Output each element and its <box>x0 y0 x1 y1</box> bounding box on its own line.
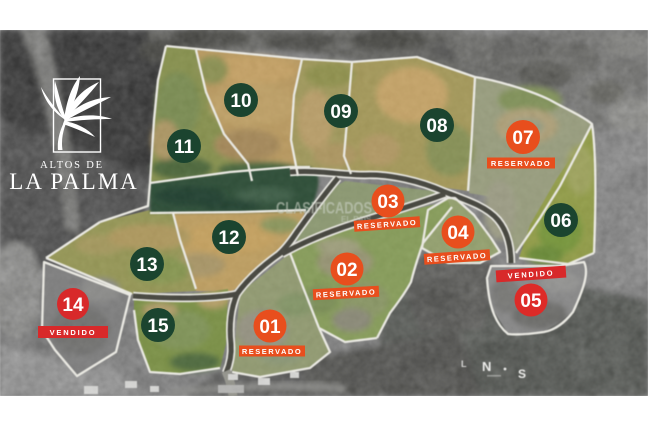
svg-text:03: 03 <box>377 192 398 213</box>
svg-text:RESERVADO: RESERVADO <box>242 347 302 356</box>
svg-text:S: S <box>518 367 526 381</box>
svg-text:07: 07 <box>512 128 533 149</box>
svg-text:01: 01 <box>259 317 281 338</box>
svg-text:09: 09 <box>330 102 351 123</box>
svg-text:14: 14 <box>62 295 84 316</box>
svg-text:LA PALMA: LA PALMA <box>9 169 139 194</box>
svg-text:N: N <box>482 359 491 374</box>
svg-text:11: 11 <box>174 137 195 158</box>
svg-text:L: L <box>461 359 467 369</box>
svg-text:08: 08 <box>426 116 447 137</box>
svg-text:05: 05 <box>520 291 542 312</box>
svg-text:15: 15 <box>147 316 169 337</box>
svg-text:10: 10 <box>230 91 251 112</box>
svg-text:VENDIDO: VENDIDO <box>50 328 97 337</box>
svg-text:13: 13 <box>136 255 157 276</box>
svg-text:06: 06 <box>550 211 571 232</box>
svg-text:02: 02 <box>336 260 357 281</box>
svg-text:12: 12 <box>218 228 239 249</box>
svg-text:RESERVADO: RESERVADO <box>491 159 551 168</box>
svg-text:04: 04 <box>447 223 469 244</box>
